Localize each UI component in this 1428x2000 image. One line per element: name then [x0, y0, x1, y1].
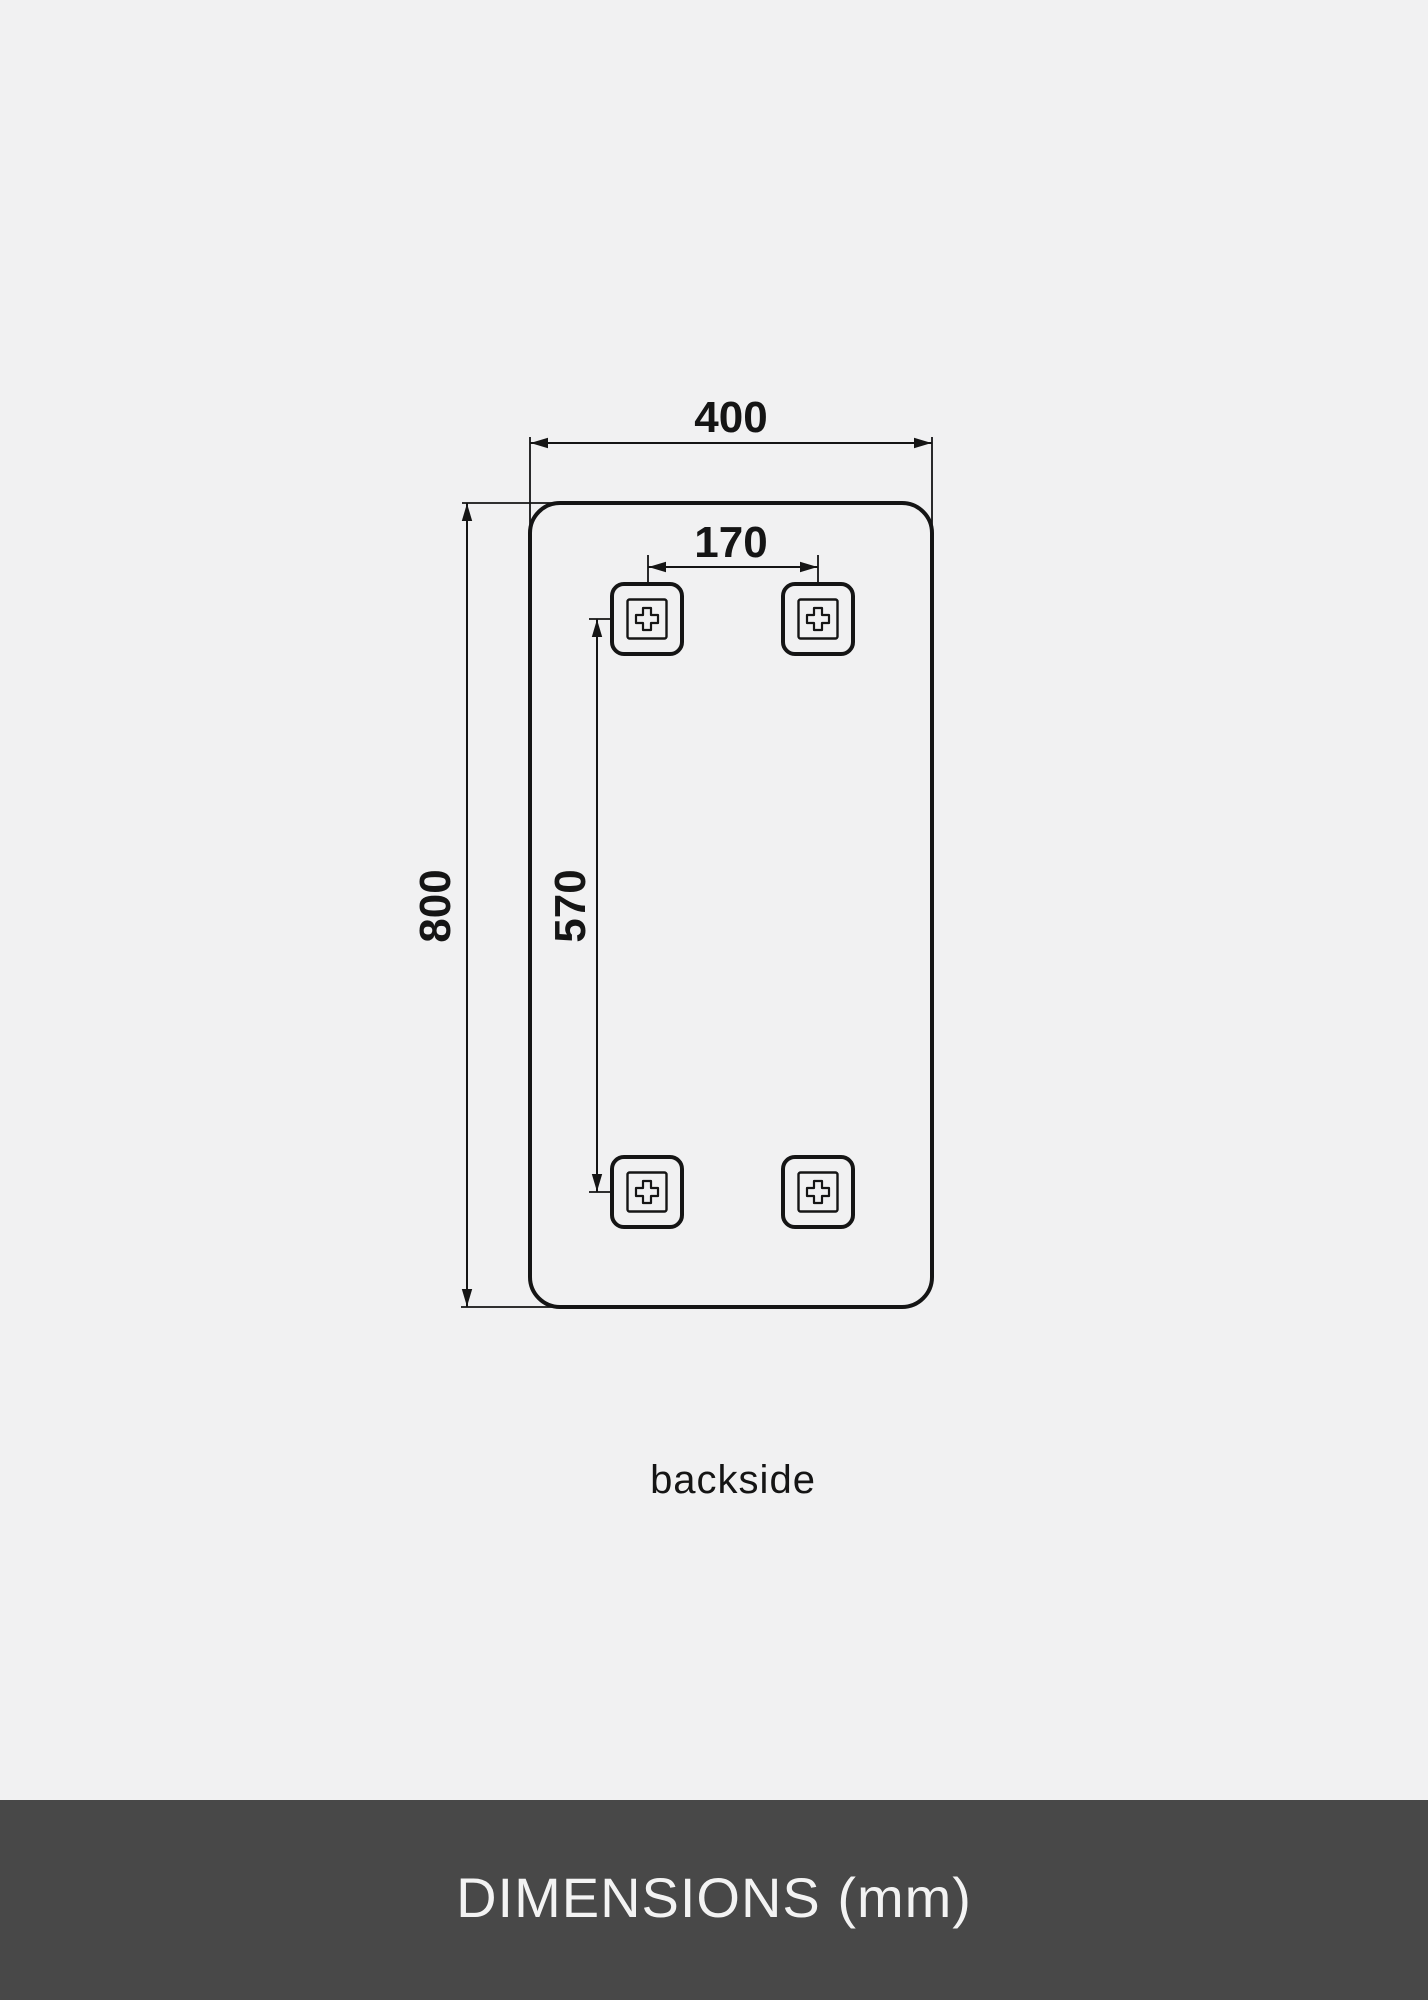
mounting-bracket-bottom-right	[783, 1157, 853, 1227]
backside-caption: backside	[650, 1458, 816, 1502]
bracket-offset-label: 570	[546, 869, 595, 942]
bracket-outer-square	[783, 1157, 853, 1227]
footer-title: DIMENSIONS (mm)	[456, 1865, 972, 1930]
width-dimension-label: 400	[694, 393, 767, 442]
diagram-canvas: 400 800 170 570	[0, 0, 1428, 1800]
height-dimension-label: 800	[411, 869, 460, 942]
bracket-outer-square	[783, 584, 853, 654]
mounting-bracket-top-right	[783, 584, 853, 654]
dimension-diagram-page: 400 800 170 570	[0, 0, 1428, 2000]
bracket-vertical-dimension: 570	[546, 619, 611, 1192]
bracket-spacing-label: 170	[694, 518, 767, 567]
mounting-bracket-bottom-left	[612, 1157, 682, 1227]
bracket-outer-square	[612, 1157, 682, 1227]
mounting-bracket-top-left	[612, 584, 682, 654]
bracket-horizontal-dimension: 170	[648, 518, 818, 582]
bracket-outer-square	[612, 584, 682, 654]
footer-bar: DIMENSIONS (mm)	[0, 1800, 1428, 2000]
